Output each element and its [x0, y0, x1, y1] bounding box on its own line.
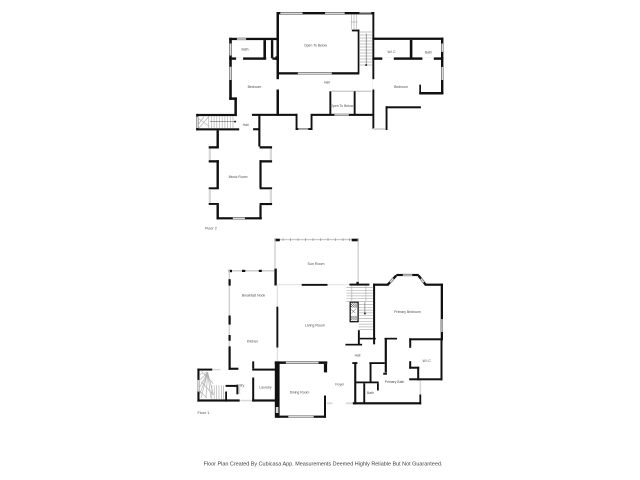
svg-text:Living Room: Living Room: [305, 324, 325, 328]
svg-text:Bedroom: Bedroom: [394, 85, 408, 89]
svg-text:Kitchen: Kitchen: [247, 340, 258, 344]
svg-text:Laundry: Laundry: [259, 386, 272, 390]
svg-text:Bath: Bath: [242, 48, 249, 52]
svg-text:Primary Bedroom: Primary Bedroom: [394, 310, 421, 314]
svg-text:Bath: Bath: [425, 51, 432, 55]
svg-text:Breakfast Nook: Breakfast Nook: [242, 294, 265, 298]
svg-text:Floor 2: Floor 2: [205, 227, 217, 231]
svg-text:Hall: Hall: [355, 354, 361, 358]
svg-text:Bath: Bath: [367, 391, 374, 395]
svg-text:Sun Room: Sun Room: [308, 262, 325, 266]
svg-text:Hall: Hall: [324, 80, 330, 84]
svg-text:Music Room: Music Room: [229, 175, 248, 179]
svg-text:Floor Plan Created By Cubicasa: Floor Plan Created By Cubicasa App. Meas…: [204, 462, 443, 468]
svg-text:Bedroom: Bedroom: [248, 85, 262, 89]
svg-text:Foyer: Foyer: [335, 383, 345, 387]
svg-text:W.I.C: W.I.C: [387, 50, 396, 54]
svg-text:Primary Bath: Primary Bath: [385, 380, 405, 384]
svg-text:Entry: Entry: [236, 383, 244, 387]
svg-text:Hall: Hall: [243, 123, 249, 127]
svg-text:Open To Below: Open To Below: [330, 104, 353, 108]
svg-text:W.I.C: W.I.C: [423, 359, 432, 363]
svg-text:Floor 1: Floor 1: [198, 411, 210, 415]
svg-text:Dining Room: Dining Room: [290, 391, 310, 395]
svg-text:Open To Below: Open To Below: [304, 44, 327, 48]
